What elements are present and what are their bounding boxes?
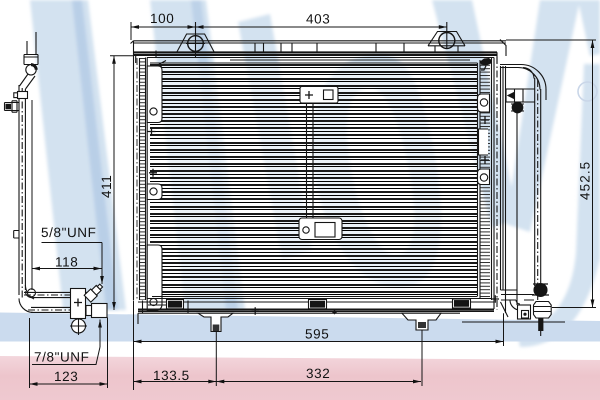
svg-text:123: 123 — [54, 369, 78, 384]
svg-text:452.5: 452.5 — [578, 161, 593, 200]
svg-text:403: 403 — [306, 12, 330, 27]
svg-text:7/8"UNF: 7/8"UNF — [34, 350, 90, 365]
svg-text:133.5: 133.5 — [153, 368, 190, 383]
svg-text:332: 332 — [306, 366, 330, 381]
svg-text:5/8"UNF: 5/8"UNF — [41, 225, 97, 240]
svg-text:118: 118 — [55, 255, 78, 270]
svg-text:100: 100 — [150, 11, 174, 26]
svg-text:411: 411 — [99, 175, 114, 198]
svg-text:595: 595 — [305, 327, 329, 342]
